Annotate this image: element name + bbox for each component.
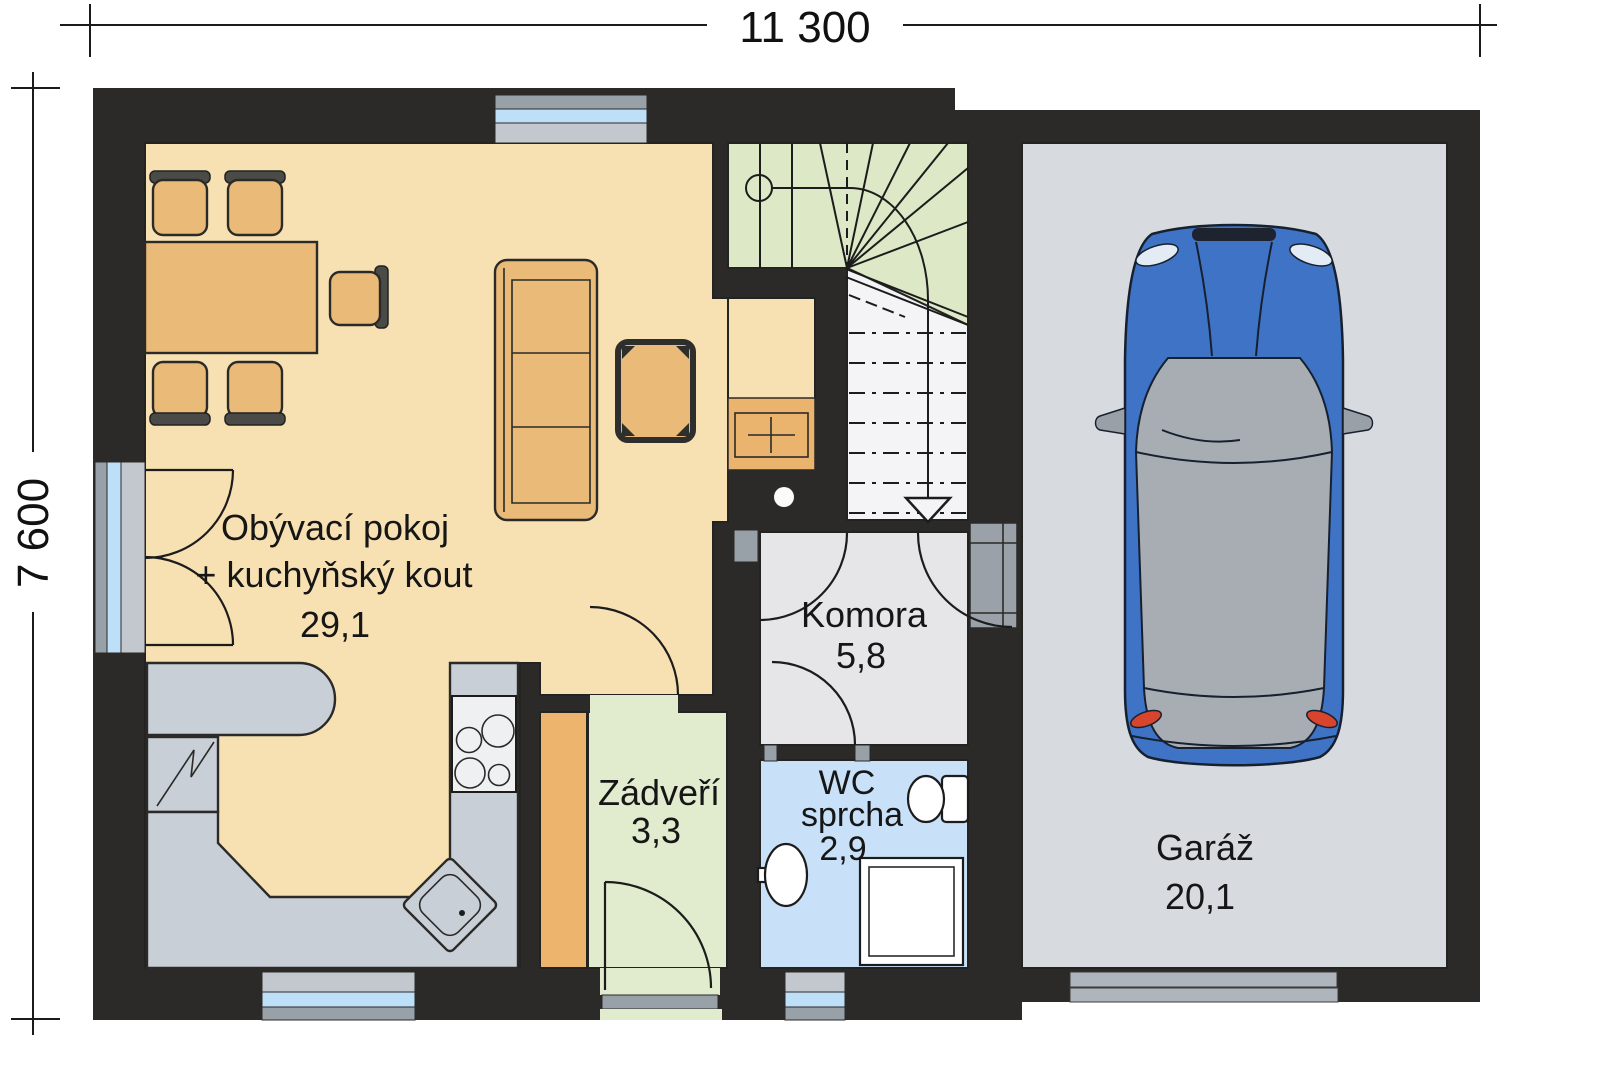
toilet-bowl — [908, 776, 944, 822]
door-frame — [734, 530, 758, 562]
sink-drain — [459, 910, 465, 916]
dining-chair — [225, 362, 285, 425]
chair-seat — [228, 362, 282, 417]
dining-table — [145, 242, 317, 353]
sofa — [495, 260, 597, 520]
label-living-1: Obývací pokoj — [221, 507, 449, 548]
basin-bowl — [765, 844, 807, 906]
shower — [860, 858, 963, 965]
dimension-top: 11 300 — [60, 3, 1497, 57]
window-sill — [785, 1007, 845, 1020]
label-zadveri: Zádveří — [598, 772, 720, 813]
floor-plan-canvas: 11 300 7 600 — [0, 0, 1600, 1070]
window-wc-bottom — [785, 972, 845, 1020]
dining-chair — [150, 171, 210, 235]
label-living-2: + kuchyňský kout — [195, 554, 472, 595]
dining-chair — [330, 266, 388, 328]
door-frame — [764, 745, 777, 761]
window-glass — [262, 992, 415, 1007]
garage-gate-panel — [1070, 972, 1337, 987]
window-glass — [107, 462, 121, 653]
label-wc-area: 2,9 — [819, 830, 866, 868]
window-sill — [95, 462, 107, 653]
window-sill — [495, 123, 647, 143]
chair-seat — [153, 180, 207, 235]
window-glass — [785, 992, 845, 1007]
chair-seat — [330, 272, 380, 325]
entrance-recess — [600, 968, 720, 995]
label-komora-area: 5,8 — [836, 635, 886, 676]
column-dot — [774, 487, 794, 507]
garage-gate — [1070, 972, 1338, 1002]
hall-niche-floor — [728, 298, 815, 400]
hall-cabinet — [728, 398, 815, 470]
window-sill — [262, 1007, 415, 1020]
label-komora: Komora — [801, 594, 928, 635]
floor-plan-page: 11 300 7 600 — [0, 0, 1600, 1070]
window-kitchen-bottom — [262, 972, 415, 1020]
dining-chair — [225, 171, 285, 235]
coffee-table-top — [618, 342, 693, 440]
chair-backrest — [225, 413, 285, 425]
dimension-width-label: 11 300 — [739, 3, 870, 52]
door-frame — [855, 745, 870, 761]
window-sill — [785, 972, 845, 992]
shower-tray — [860, 858, 963, 965]
window-sill — [262, 972, 415, 992]
label-garaz: Garáž — [1156, 827, 1254, 868]
car-glass-roof — [1136, 358, 1332, 748]
zadveri-doorway-floor — [590, 695, 678, 714]
entrance-threshold — [602, 995, 718, 1009]
kitchen-counter-peninsula — [147, 663, 335, 735]
chair-seat — [153, 362, 207, 417]
garage-gate-panel — [1070, 988, 1338, 1002]
sofa-body — [495, 260, 597, 520]
fridge — [147, 737, 218, 812]
dimension-left: 7 600 — [9, 72, 60, 1035]
window-glass — [495, 109, 647, 123]
dimension-height-label: 7 600 — [9, 478, 58, 588]
toilet-tank — [942, 776, 968, 822]
coffee-table — [618, 342, 693, 440]
label-garaz-area: 20,1 — [1165, 876, 1235, 917]
wardrobe — [540, 712, 587, 968]
label-wc-2: sprcha — [801, 796, 903, 834]
window-sill — [121, 462, 145, 653]
label-zadveri-area: 3,3 — [631, 810, 681, 851]
window-sill — [495, 95, 647, 109]
entrance-step — [600, 1009, 722, 1020]
car-cowl-vent — [1192, 228, 1276, 241]
chair-seat — [228, 180, 282, 235]
toilet — [908, 776, 968, 822]
cooktop — [452, 696, 516, 792]
car — [1096, 225, 1373, 765]
dining-chair — [150, 362, 210, 425]
label-living-area: 29,1 — [300, 604, 370, 645]
chair-backrest — [150, 413, 210, 425]
window-top — [495, 95, 647, 143]
